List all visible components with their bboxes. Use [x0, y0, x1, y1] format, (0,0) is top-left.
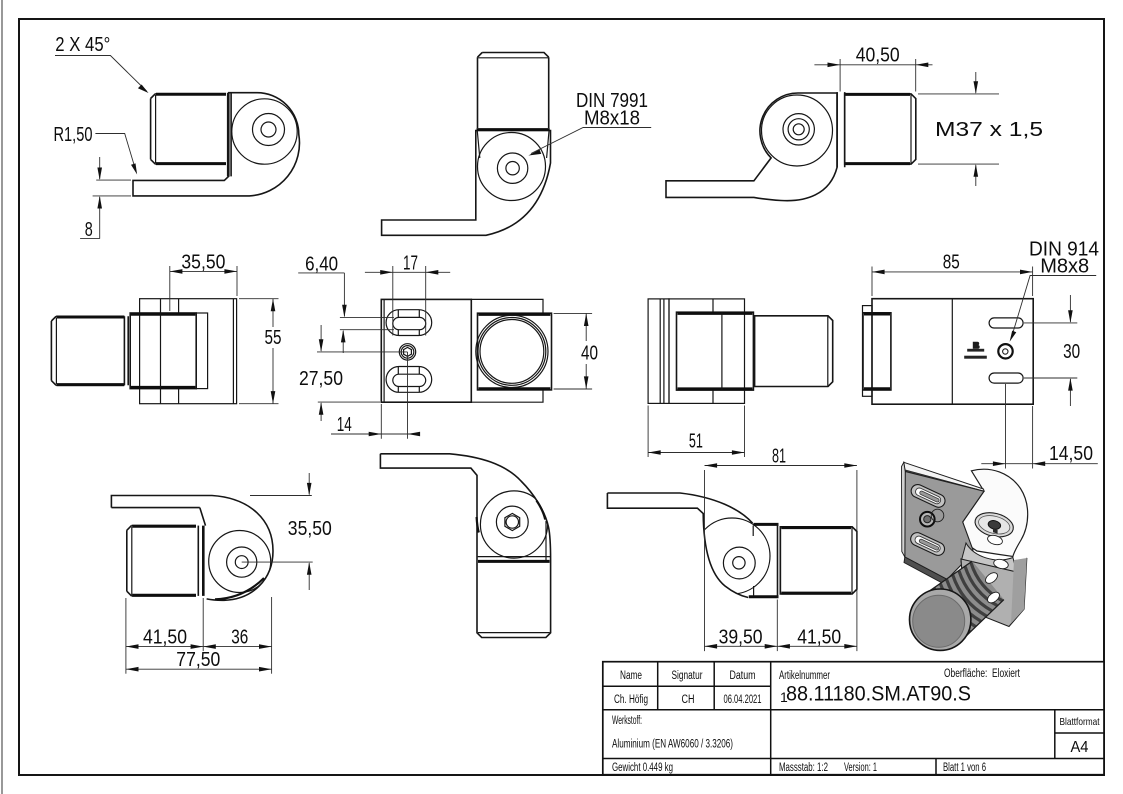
svg-text:R1,50: R1,50 — [54, 124, 93, 146]
svg-text:Version: 1: Version: 1 — [844, 762, 877, 774]
svg-text:36: 36 — [231, 627, 248, 649]
svg-text:Oberfläche: Eloxiert: Oberfläche: Eloxiert — [944, 668, 1021, 680]
svg-text:39,50: 39,50 — [719, 627, 763, 649]
svg-text:51: 51 — [689, 431, 703, 453]
svg-text:40: 40 — [581, 343, 598, 365]
svg-text:81: 81 — [772, 446, 786, 468]
svg-text:Name: Name — [620, 670, 642, 682]
svg-text:35,50: 35,50 — [181, 252, 225, 274]
svg-text:Signatur: Signatur — [672, 670, 703, 682]
svg-text:35,50: 35,50 — [288, 518, 332, 540]
svg-text:Blattformat: Blattformat — [1060, 716, 1100, 728]
svg-text:Massstab: 1:2: Massstab: 1:2 — [779, 762, 828, 774]
svg-text:Werkstoff:: Werkstoff: — [612, 715, 642, 727]
svg-text:77,50: 77,50 — [176, 649, 220, 671]
svg-text:M8x8: M8x8 — [1040, 256, 1089, 278]
svg-text:17: 17 — [403, 253, 418, 275]
svg-text:M8x18: M8x18 — [584, 108, 640, 130]
svg-text:Blatt 1 von 6: Blatt 1 von 6 — [943, 762, 986, 774]
svg-text:Artikelnummer: Artikelnummer — [779, 670, 830, 682]
svg-text:8: 8 — [85, 219, 93, 241]
svg-text:Datum: Datum — [730, 670, 756, 682]
svg-text:88.11180.SM.AT90.S: 88.11180.SM.AT90.S — [786, 682, 971, 706]
svg-text:40,50: 40,50 — [856, 45, 900, 67]
svg-text:85: 85 — [943, 252, 960, 274]
svg-text:06.04.2021: 06.04.2021 — [724, 694, 762, 706]
svg-text:14: 14 — [337, 414, 352, 436]
svg-text:41,50: 41,50 — [143, 627, 187, 649]
svg-text:27,50: 27,50 — [299, 368, 343, 390]
svg-text:41,50: 41,50 — [797, 627, 841, 649]
svg-text:Gewicht 0.449 kg: Gewicht 0.449 kg — [612, 762, 673, 774]
svg-text:CH: CH — [682, 694, 695, 706]
svg-text:Ch. Höfig: Ch. Höfig — [614, 694, 648, 706]
svg-text:30: 30 — [1063, 341, 1080, 363]
svg-text:A4: A4 — [1071, 739, 1089, 756]
svg-text:6,40: 6,40 — [305, 254, 338, 276]
svg-text:Aluminium (EN AW6060 / 3.3206): Aluminium (EN AW6060 / 3.3206) — [612, 739, 733, 751]
svg-text:2 X 45°: 2 X 45° — [55, 34, 110, 56]
svg-text:55: 55 — [265, 327, 282, 349]
svg-text:14,50: 14,50 — [1049, 443, 1093, 465]
svg-text:M37 x 1,5: M37 x 1,5 — [935, 119, 1043, 141]
